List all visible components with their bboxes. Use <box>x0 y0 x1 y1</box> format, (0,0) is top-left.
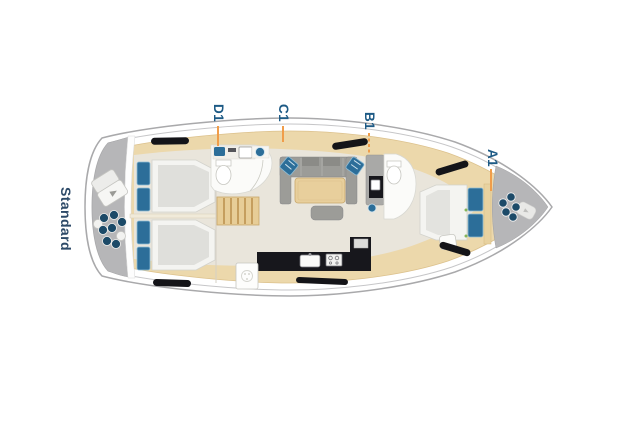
bed-duvet <box>158 165 209 207</box>
pillow <box>468 214 483 237</box>
reading-light <box>465 209 468 212</box>
sink <box>371 180 380 190</box>
fridge <box>236 263 258 289</box>
yacht-floorplan-svg <box>0 0 631 421</box>
cabin-label-c1: C1 <box>275 93 291 133</box>
cabin-label-a1: A1 <box>484 138 500 178</box>
stove <box>326 254 342 266</box>
sofa-backrest <box>323 157 340 166</box>
sofa-backrest <box>302 157 319 166</box>
pillow <box>468 188 483 211</box>
countertop-module <box>354 239 368 248</box>
cabin-label-d1: D1 <box>210 93 226 133</box>
hatch <box>151 137 189 145</box>
sink <box>239 147 252 158</box>
galley-faucet <box>309 253 312 256</box>
pillow <box>137 188 150 211</box>
saloon-table <box>295 178 345 203</box>
pillow <box>137 247 150 270</box>
layout-name-label: Standard <box>57 179 75 259</box>
pillow <box>137 221 150 244</box>
basin <box>368 204 376 212</box>
towel <box>214 147 225 156</box>
toilet-bowl <box>216 166 231 185</box>
bed-duvet <box>426 190 450 235</box>
toilet-bowl <box>387 166 401 184</box>
yacht-layout-diagram: Standard D1 C1 B1 A1 <box>0 0 631 421</box>
cabin-divider-wall <box>130 214 216 218</box>
saloon-stool <box>311 206 343 220</box>
basin <box>256 148 265 157</box>
pillow <box>137 162 150 185</box>
headboard-shelf <box>484 184 491 244</box>
hatch <box>153 279 191 287</box>
reading-light <box>465 235 468 238</box>
companionway-stairs <box>217 197 259 225</box>
faucet <box>228 148 236 152</box>
bed-duvet <box>158 225 209 265</box>
galley-sink <box>300 255 320 267</box>
cabin-label-b1: B1 <box>361 101 377 141</box>
